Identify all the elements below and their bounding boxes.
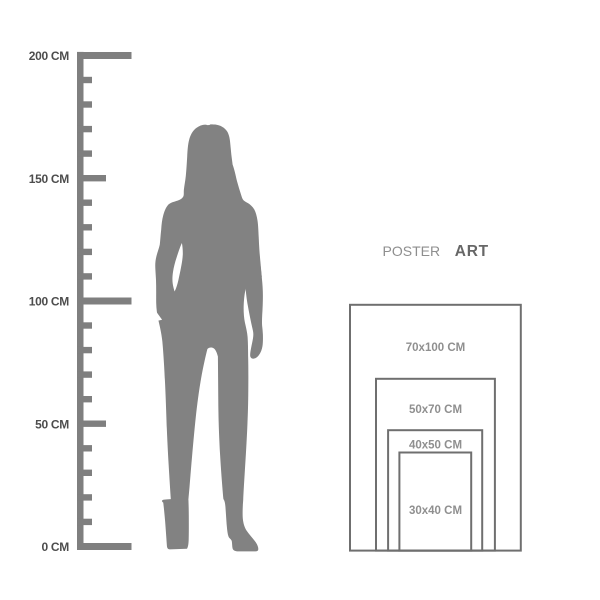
- svg-text:70x100 CM: 70x100 CM: [406, 342, 465, 354]
- svg-text:200 CM: 200 CM: [29, 49, 70, 63]
- svg-text:40x50 CM: 40x50 CM: [409, 440, 462, 452]
- svg-text:50x70 CM: 50x70 CM: [409, 404, 462, 416]
- svg-text:ART: ART: [455, 243, 489, 260]
- svg-text:30x40 CM: 30x40 CM: [409, 505, 462, 517]
- svg-text:100 CM: 100 CM: [29, 295, 70, 309]
- svg-text:50 CM: 50 CM: [35, 417, 69, 431]
- svg-text:POSTER: POSTER: [383, 243, 441, 259]
- svg-text:150 CM: 150 CM: [29, 172, 70, 186]
- svg-text:0 CM: 0 CM: [42, 540, 70, 554]
